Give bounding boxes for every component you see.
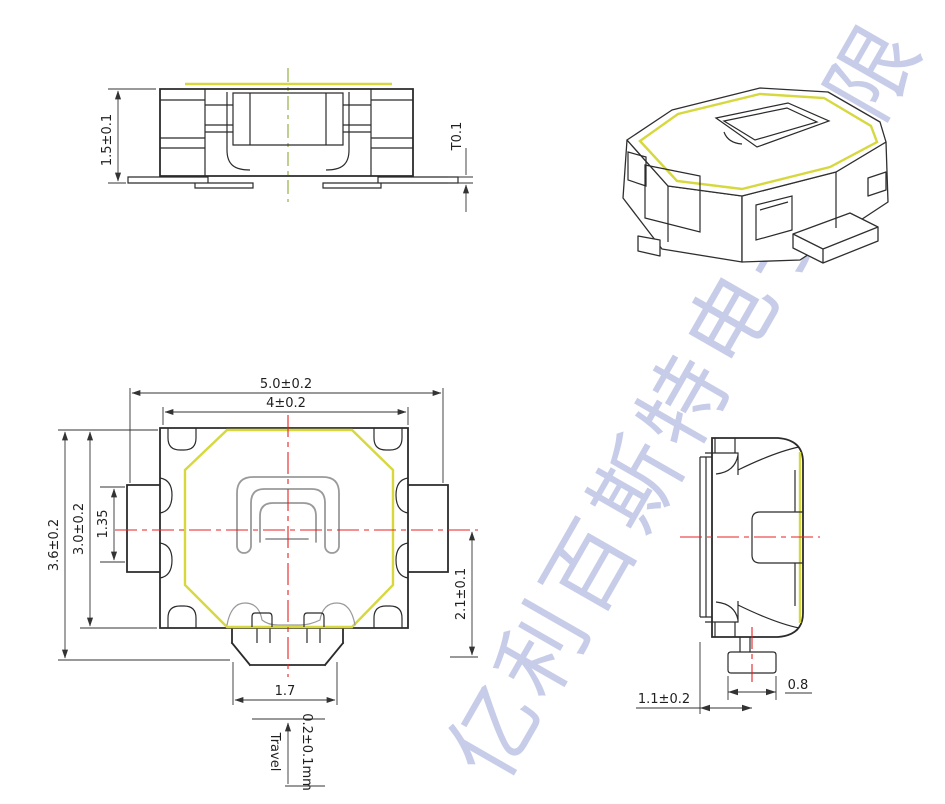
dim-front-height: 1.5±0.1 <box>100 114 115 166</box>
front-view: 1.5±0.1 T0.1 <box>100 68 473 212</box>
dim-body-width: 4±0.2 <box>266 396 306 411</box>
dim-overall-depth: 3.6±0.2 <box>47 519 62 571</box>
front-terminals <box>128 177 458 188</box>
top-cover-highlight <box>185 430 393 627</box>
dim-stem-offset: 1.1±0.2 <box>638 692 690 707</box>
front-detail-lines <box>160 89 413 176</box>
top-centerlines <box>115 415 478 677</box>
dim-stem-to-center: 2.1±0.1 <box>454 568 469 620</box>
dim-terminal-width: 1.35 <box>96 510 111 539</box>
dim-stem-width: 1.7 <box>275 684 296 699</box>
side-details <box>700 438 803 637</box>
dim-terminal-thickness-ext <box>448 177 473 183</box>
dim-terminal-thickness: T0.1 <box>450 122 465 152</box>
top-clip-details <box>160 428 408 643</box>
dim-overall-width: 5.0±0.2 <box>260 377 312 392</box>
dim-stem-foot-width: 0.8 <box>788 678 809 693</box>
tact-switch-drawing: 亿利百斯特电子有限 1.5±0.1 T0.1 <box>0 0 945 804</box>
travel-value: 0.2±0.1mm <box>299 713 314 791</box>
top-actuator-silhouette <box>227 603 355 625</box>
travel-label: Travel <box>267 732 282 772</box>
drawing-sheet: 亿利百斯特电子有限 1.5±0.1 T0.1 <box>0 0 945 804</box>
dim-front-height-ext <box>108 89 156 183</box>
dim-body-depth: 3.0±0.2 <box>72 503 87 555</box>
top-view: 5.0±0.2 4±0.2 3.6±0.2 3.0±0.2 1.35 2.1±0… <box>47 377 478 791</box>
front-outline <box>160 89 413 176</box>
isometric-view <box>623 88 888 263</box>
